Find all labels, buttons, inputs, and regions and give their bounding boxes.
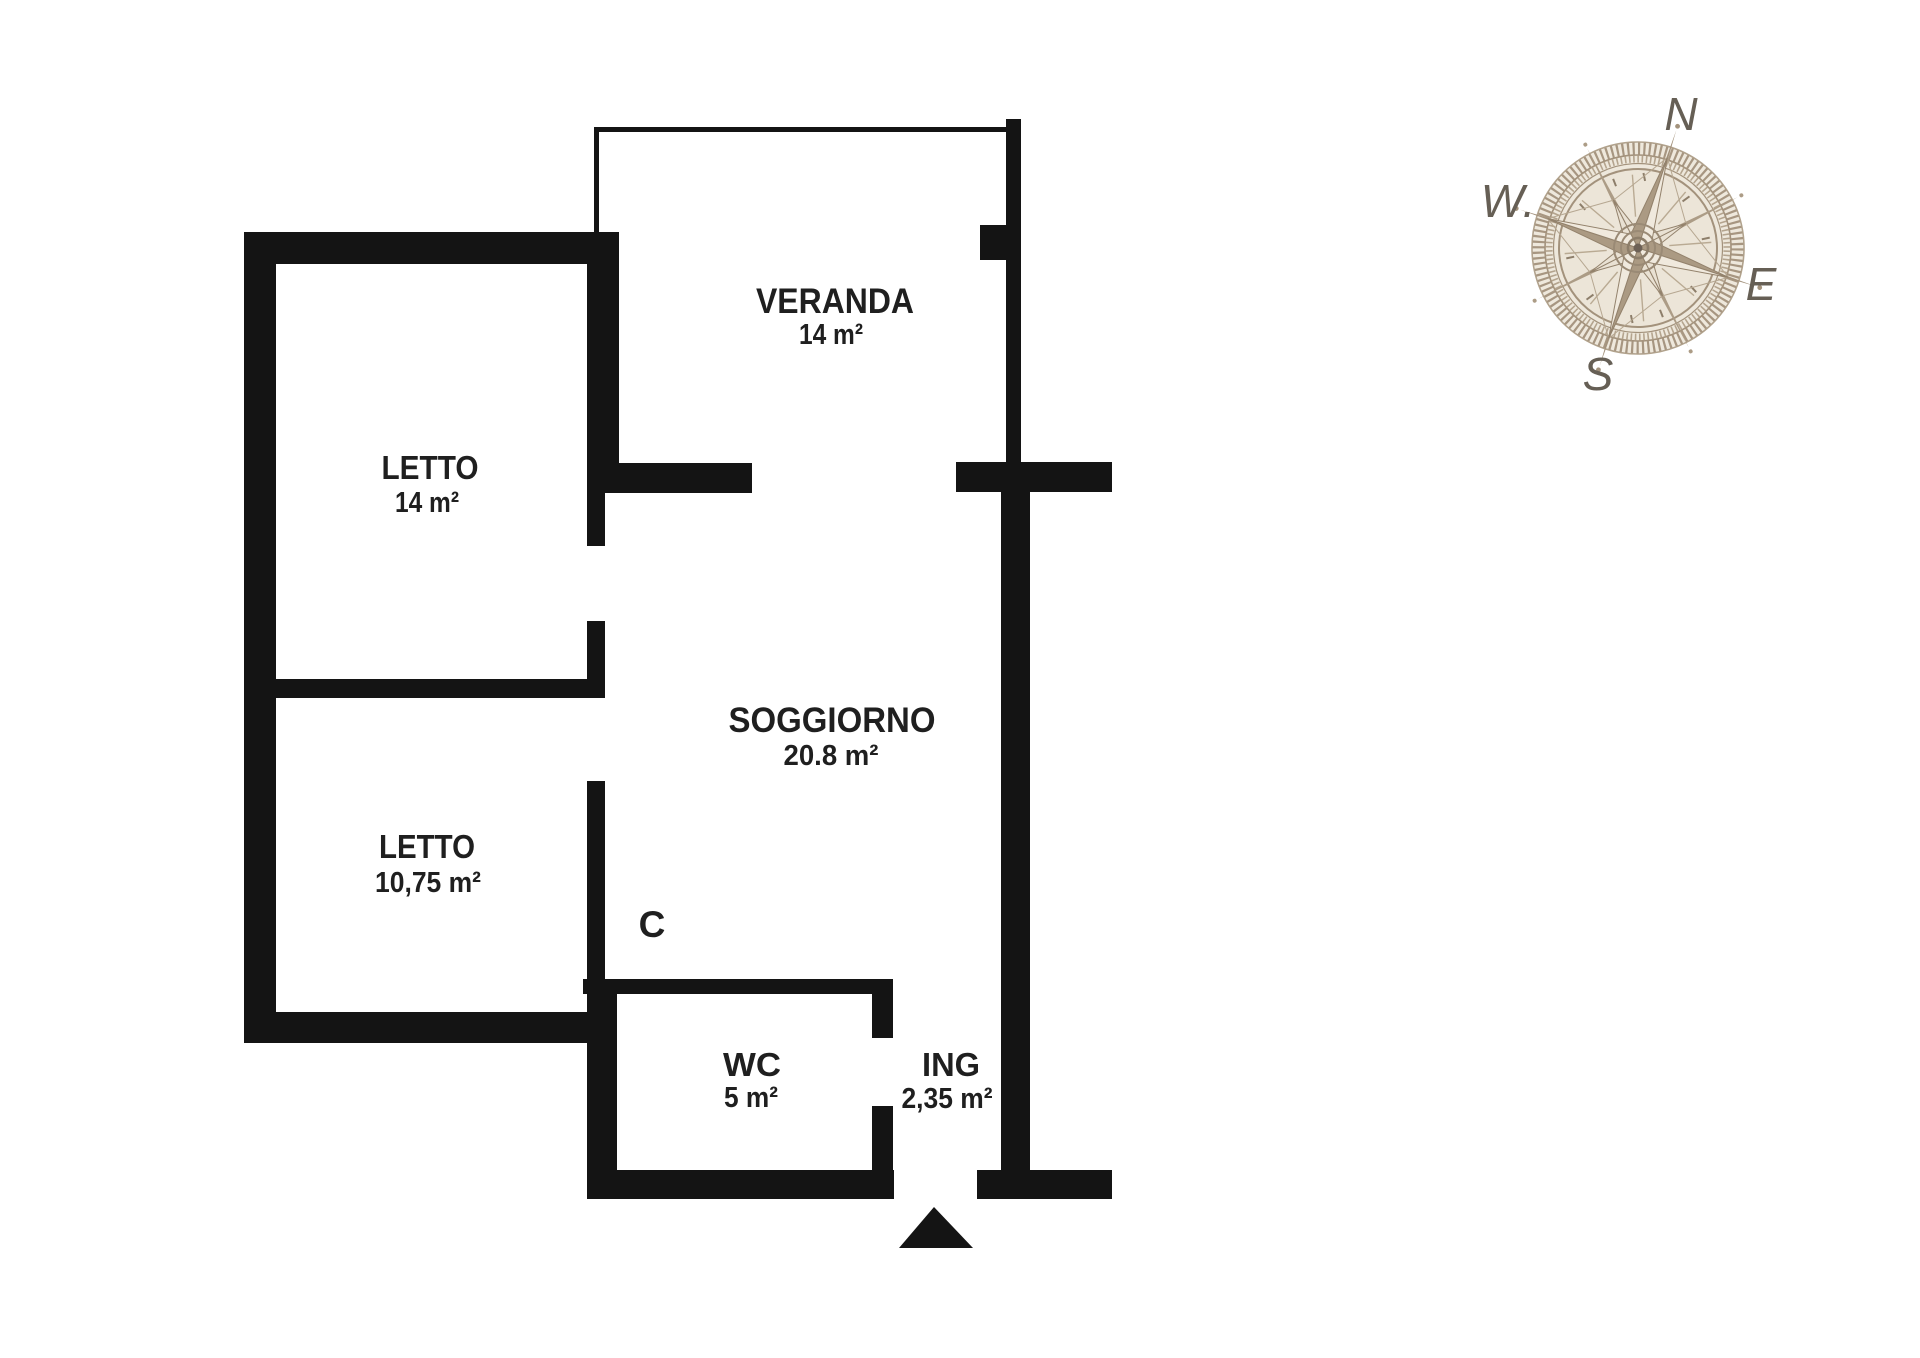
svg-text:2,35 m²: 2,35 m² xyxy=(902,1083,993,1115)
svg-text:14 m²: 14 m² xyxy=(395,487,459,519)
svg-text:WC: WC xyxy=(723,1046,781,1083)
svg-text:LETTO: LETTO xyxy=(379,828,475,865)
svg-text:SOGGIORNO: SOGGIORNO xyxy=(729,701,936,740)
svg-text:10,75 m²: 10,75 m² xyxy=(375,867,481,899)
svg-text:W.: W. xyxy=(1481,175,1536,227)
svg-text:20.8 m²: 20.8 m² xyxy=(784,740,879,772)
svg-text:C: C xyxy=(639,904,666,945)
svg-text:5 m²: 5 m² xyxy=(724,1082,778,1114)
svg-text:N: N xyxy=(1664,88,1698,140)
svg-text:LETTO: LETTO xyxy=(382,449,479,486)
svg-text:VERANDA: VERANDA xyxy=(756,282,914,321)
svg-text:ING: ING xyxy=(922,1046,980,1083)
svg-text:S: S xyxy=(1583,348,1614,400)
svg-text:E: E xyxy=(1746,258,1778,310)
svg-text:14 m²: 14 m² xyxy=(799,319,863,351)
